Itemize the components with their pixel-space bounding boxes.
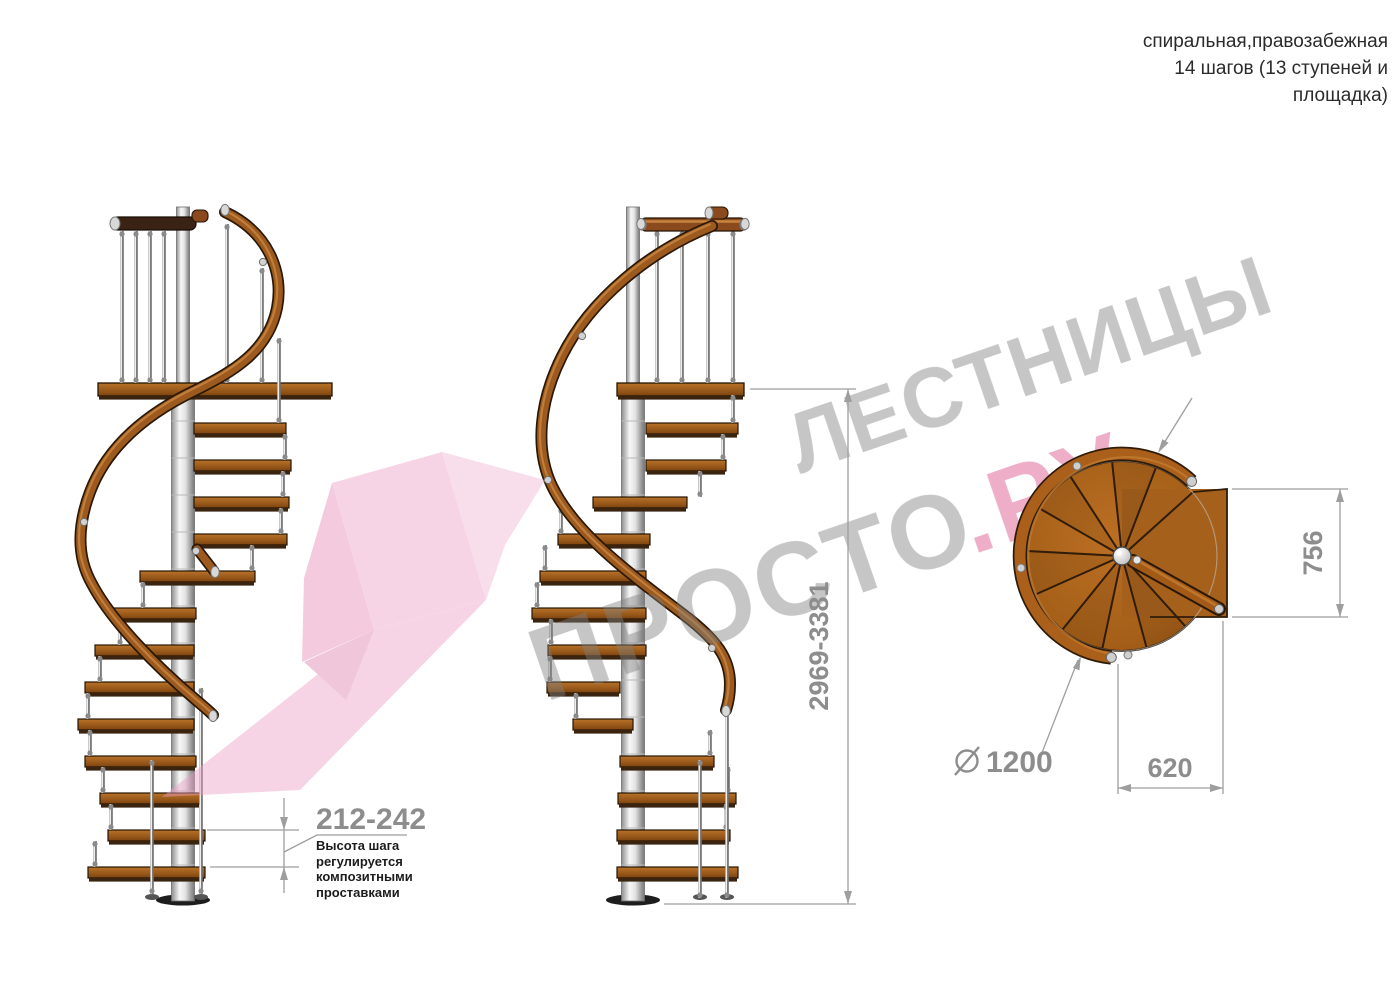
step-tread bbox=[618, 793, 736, 804]
platform bbox=[617, 383, 744, 396]
rod-collar bbox=[707, 730, 712, 735]
dimension-arrow bbox=[1073, 656, 1081, 670]
rod-collar bbox=[249, 545, 254, 550]
title-line: 14 шагов (13 ступеней и bbox=[1143, 55, 1388, 82]
plan-rail-bar-cap bbox=[1215, 605, 1224, 614]
step-tread-edge bbox=[647, 471, 725, 475]
rod-collar bbox=[140, 602, 145, 607]
rod-collar bbox=[276, 417, 281, 422]
rod-collar bbox=[149, 888, 154, 893]
step-tread-edge bbox=[195, 508, 288, 512]
rod-collar bbox=[100, 787, 105, 792]
step-tread-edge bbox=[101, 804, 199, 808]
plan-top-view bbox=[1017, 454, 1227, 662]
step-tread bbox=[646, 460, 726, 471]
step-tread bbox=[88, 867, 205, 878]
dimension-arrow bbox=[280, 867, 288, 880]
dimension-arrow bbox=[1118, 784, 1131, 792]
rod-collar bbox=[119, 377, 124, 382]
rod-collar bbox=[730, 417, 735, 422]
handrail-end-cap bbox=[722, 705, 730, 716]
handrail-end-cap bbox=[705, 207, 713, 219]
rod-collar bbox=[282, 454, 287, 459]
step-tread bbox=[194, 534, 287, 545]
rod-collar bbox=[147, 377, 152, 382]
title-line: площадка) bbox=[1143, 82, 1388, 109]
rod-collar bbox=[278, 528, 283, 533]
step-tread-edge bbox=[79, 730, 193, 734]
dimension-arrow bbox=[1336, 604, 1344, 617]
handrail-end-cap bbox=[110, 217, 120, 230]
step-tread-edge bbox=[574, 730, 632, 734]
rod-collar bbox=[730, 231, 735, 236]
step-tread bbox=[108, 830, 205, 841]
pole-upper-post bbox=[627, 207, 640, 389]
step-tread bbox=[194, 497, 289, 508]
rod-collar bbox=[534, 582, 539, 587]
rod-collar bbox=[282, 434, 287, 439]
rail-connector-ball bbox=[80, 518, 87, 525]
rail-connector-ball bbox=[578, 332, 585, 339]
dimension-arrow bbox=[1336, 489, 1344, 502]
dimension-arrow bbox=[280, 817, 288, 830]
dimension-arrow bbox=[844, 891, 852, 904]
dim-total-height: 2969-3381 bbox=[804, 581, 834, 710]
step-tread-edge bbox=[619, 804, 735, 808]
rod-collar bbox=[108, 824, 113, 829]
rod-collar bbox=[707, 750, 712, 755]
step-tread bbox=[194, 423, 286, 434]
rod-collar bbox=[149, 760, 154, 765]
drawing-title: спиральная,правозабежная 14 шагов (13 ст… bbox=[1143, 28, 1388, 109]
plan-baluster-nub bbox=[1124, 651, 1132, 659]
rod-collar bbox=[720, 434, 725, 439]
rod-collar bbox=[278, 508, 283, 513]
rod-foot bbox=[145, 894, 159, 900]
step-tread-edge bbox=[86, 693, 193, 697]
rod-collar bbox=[697, 471, 702, 476]
step-tread bbox=[573, 719, 633, 730]
handrail-end-cap bbox=[209, 710, 217, 721]
dimension-arrow bbox=[1210, 784, 1223, 792]
rod-collar bbox=[117, 639, 122, 644]
rod-collar bbox=[730, 377, 735, 382]
handrail-end-cap bbox=[211, 566, 219, 577]
plan-ring-end-cap bbox=[1106, 652, 1116, 662]
rod-collar bbox=[720, 454, 725, 459]
step-tread bbox=[85, 756, 196, 767]
handrail-end-cap bbox=[221, 204, 229, 215]
plan-ring-end-cap bbox=[1187, 476, 1197, 486]
rod-collar bbox=[542, 565, 547, 570]
rod-collar bbox=[654, 377, 659, 382]
dim-plan-width: 620 bbox=[1147, 753, 1192, 783]
step-tread-edge bbox=[109, 841, 204, 845]
rod-collar bbox=[87, 730, 92, 735]
rod-collar bbox=[249, 565, 254, 570]
rod-collar bbox=[259, 377, 264, 382]
platform-edge bbox=[618, 396, 743, 400]
rod-collar bbox=[705, 377, 710, 382]
step-tread bbox=[78, 719, 194, 730]
rod-collar bbox=[161, 231, 166, 236]
watermark-word-2: ПРОСТО bbox=[515, 464, 990, 724]
plan-center-pole bbox=[1113, 547, 1131, 565]
rod-collar bbox=[108, 804, 113, 809]
step-tread-edge bbox=[89, 878, 204, 882]
rod-collar bbox=[697, 760, 702, 765]
rail-connector-ball bbox=[544, 476, 551, 483]
rod-collar bbox=[97, 656, 102, 661]
leader-line bbox=[1161, 398, 1192, 448]
platform-edge bbox=[99, 396, 331, 400]
rod-collar bbox=[198, 888, 203, 893]
step-tread-edge bbox=[141, 582, 254, 586]
plan-baluster-nub bbox=[1017, 564, 1025, 572]
rod-collar bbox=[259, 268, 264, 273]
rod-collar bbox=[724, 892, 729, 897]
platform-handrail-dark bbox=[112, 217, 196, 230]
rod-collar bbox=[140, 582, 145, 587]
rod-foot bbox=[194, 894, 208, 900]
rod-collar bbox=[558, 528, 563, 533]
plan-center-pole-highlight bbox=[1116, 550, 1121, 555]
rod-collar bbox=[92, 841, 97, 846]
rod-collar bbox=[276, 338, 281, 343]
rod-collar bbox=[133, 377, 138, 382]
rod-collar bbox=[198, 688, 203, 693]
rod-collar bbox=[92, 861, 97, 866]
rod-collar bbox=[133, 231, 138, 236]
rod-collar bbox=[730, 395, 735, 400]
step-tread bbox=[194, 460, 291, 471]
rod-collar bbox=[542, 545, 547, 550]
step-tread-edge bbox=[594, 508, 686, 512]
step-tread bbox=[140, 571, 255, 582]
plan-baluster-nub bbox=[1073, 462, 1081, 470]
rod-collar bbox=[280, 471, 285, 476]
step-tread-edge bbox=[195, 471, 290, 475]
rod-collar bbox=[85, 693, 90, 698]
rail-connector-ball bbox=[259, 258, 266, 265]
dim-plan-depth: 756 bbox=[1298, 530, 1328, 575]
rod-collar bbox=[679, 377, 684, 382]
dimension-arrow bbox=[1158, 439, 1169, 453]
handrail-end-cap bbox=[741, 218, 749, 229]
rod-collar bbox=[97, 676, 102, 681]
rod-collar bbox=[654, 231, 659, 236]
step-tread-edge bbox=[618, 841, 729, 845]
handrail-knob bbox=[192, 210, 208, 222]
step-tread bbox=[646, 423, 738, 434]
rod-collar bbox=[697, 892, 702, 897]
rod-collar bbox=[87, 750, 92, 755]
rod-collar bbox=[161, 377, 166, 382]
dim-plan-diameter: 1200 bbox=[986, 746, 1053, 779]
rail-connector-ball bbox=[192, 547, 199, 554]
step-tread-edge bbox=[618, 878, 737, 882]
step-tread bbox=[593, 497, 687, 508]
step-tread bbox=[617, 867, 738, 878]
step-height-note: Высота шага регулируется композитными пр… bbox=[316, 838, 413, 900]
title-line: спиральная,правозабежная bbox=[1143, 28, 1388, 55]
side-view-elevation-1 bbox=[78, 204, 332, 905]
rod-collar bbox=[100, 767, 105, 772]
step-tread-edge bbox=[195, 434, 285, 438]
rod-collar bbox=[119, 231, 124, 236]
drawing-sheet: ЛЕСТНИЦЫ ПРОСТО .РУ 212-242 2969-3381 75… bbox=[0, 0, 1400, 1000]
rod-collar bbox=[147, 231, 152, 236]
rod-collar bbox=[280, 491, 285, 496]
step-tread bbox=[617, 830, 730, 841]
plan-rail-joint bbox=[1133, 556, 1141, 564]
rod-collar bbox=[85, 713, 90, 718]
handrail-end-cap bbox=[637, 218, 645, 229]
pole-upper-post bbox=[177, 207, 190, 389]
rod-collar bbox=[224, 224, 229, 229]
dim-step-height: 212-242 bbox=[316, 803, 426, 836]
step-tread bbox=[110, 608, 196, 619]
rod-collar bbox=[697, 491, 702, 496]
staircase-technical-drawing: ЛЕСТНИЦЫ ПРОСТО .РУ 212-242 2969-3381 75… bbox=[0, 0, 1400, 1000]
step-tread-edge bbox=[195, 545, 286, 549]
